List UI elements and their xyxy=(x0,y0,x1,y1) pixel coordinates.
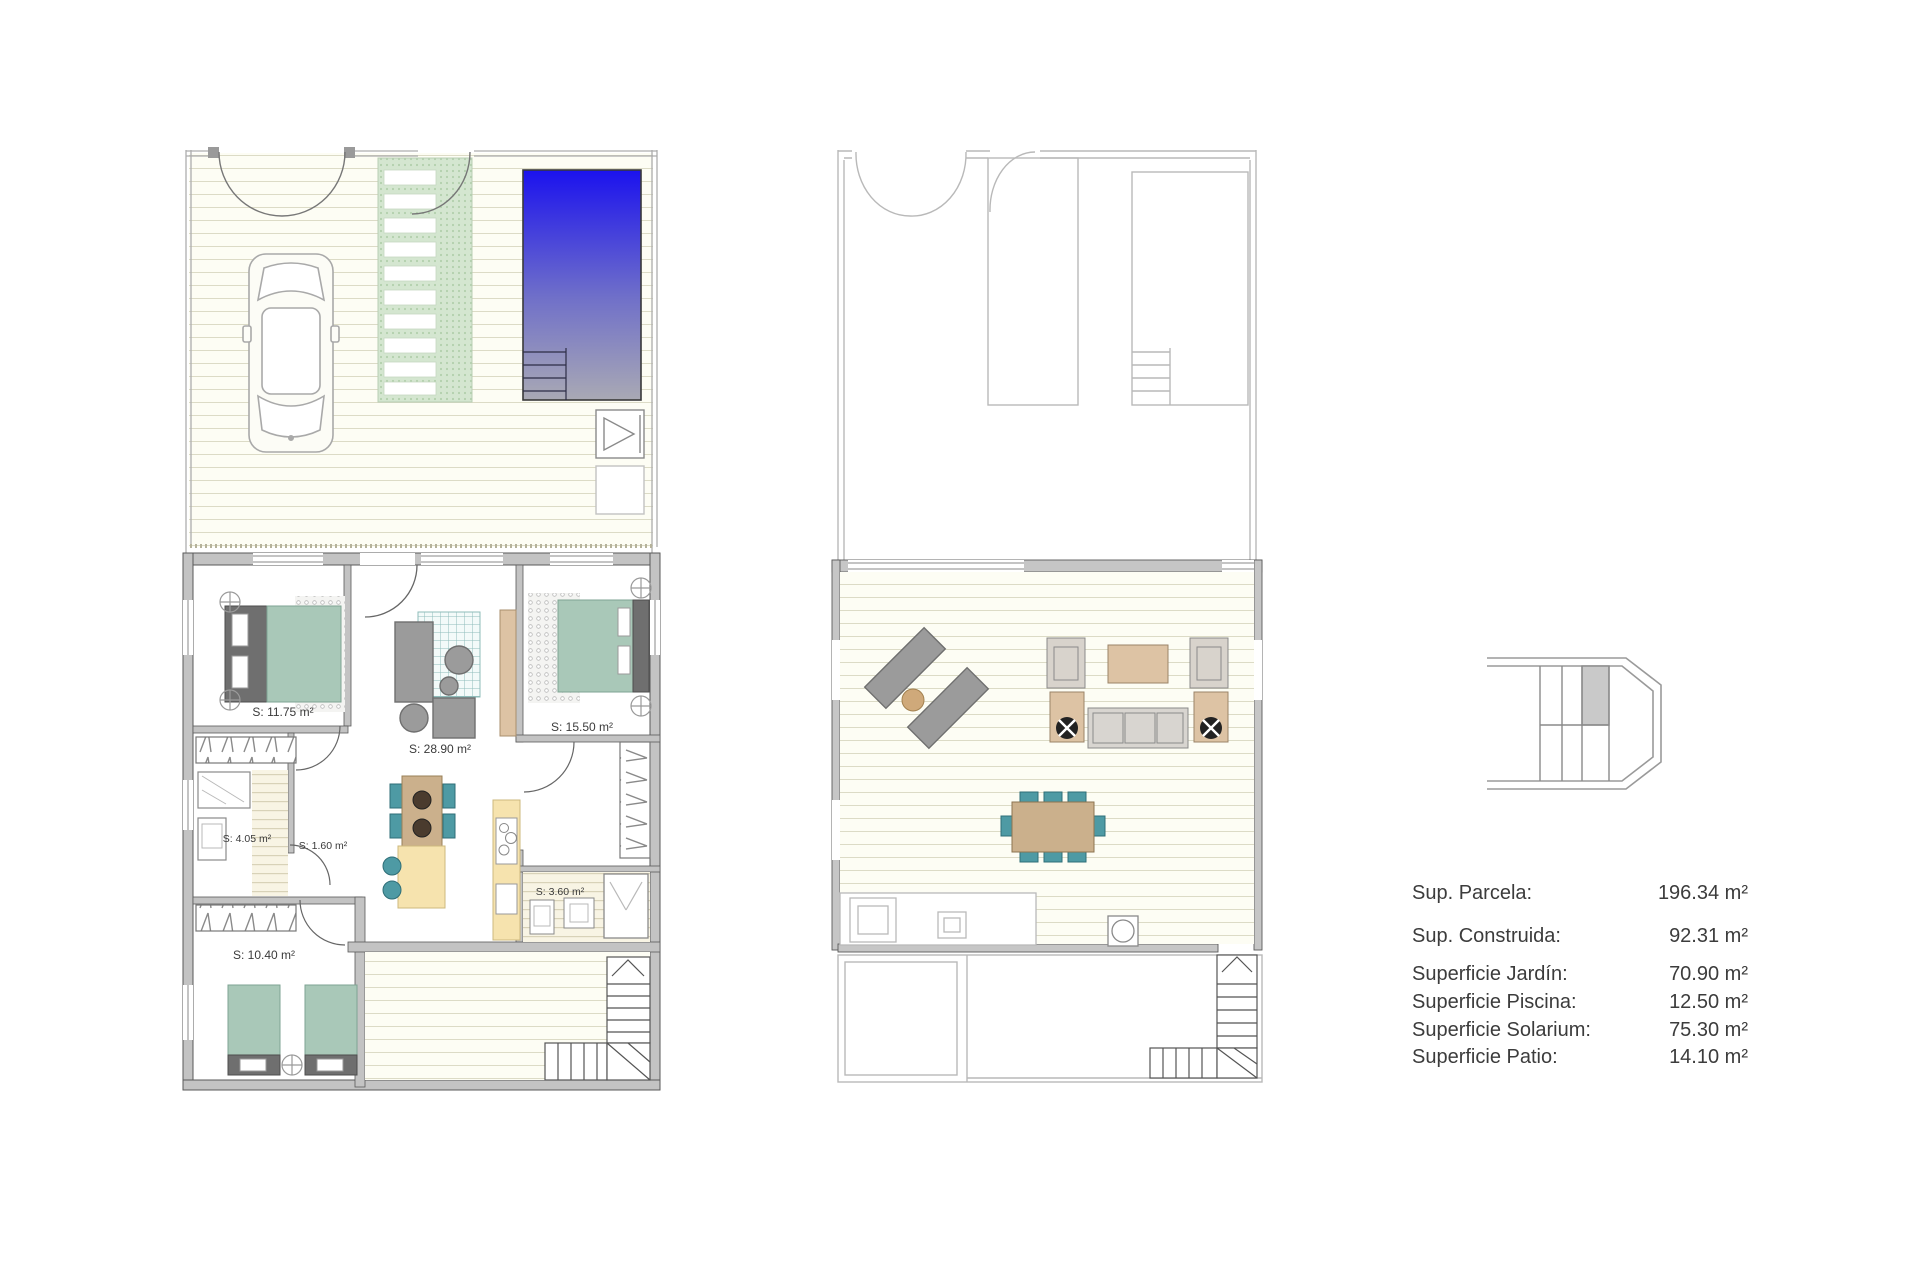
coffee-table xyxy=(1108,645,1168,683)
outdoor-dining-set xyxy=(1001,792,1105,862)
room-label: S: 4.05 m² xyxy=(223,833,272,845)
summary-row: Superficie Solarium: 75.30 m² xyxy=(1412,1019,1748,1042)
room-label: S: 15.50 m² xyxy=(551,720,613,734)
summary-value: 92.31 m² xyxy=(1669,925,1748,948)
bedroom-1: S: 11.75 m² xyxy=(220,592,345,719)
summer-kitchen-counter xyxy=(840,893,1036,945)
ground-floor-plan: S: 11.75 m² S: 4.05 m² S: 1.60 m² S: 28.… xyxy=(183,147,660,1090)
washbasin xyxy=(564,898,594,928)
summary-label: Superficie Jardín: xyxy=(1412,963,1568,986)
summary-row: Sup. Construida: 92.31 m² xyxy=(1412,925,1748,948)
living-kitchen: S: 28.90 m² xyxy=(383,610,520,940)
room-label: S: 3.60 m² xyxy=(536,886,585,898)
room-label: S: 1.60 m² xyxy=(299,840,348,852)
outdoor-sofa xyxy=(1088,708,1188,748)
pool-outline-steps xyxy=(1132,348,1170,405)
kitchen-island xyxy=(383,846,445,908)
room-label: S: 11.75 m² xyxy=(252,705,313,719)
summary-label: Superficie Solarium: xyxy=(1412,1019,1591,1042)
highlighted-unit xyxy=(1582,666,1609,725)
floor-plan-sheet: S: 11.75 m² S: 4.05 m² S: 1.60 m² S: 28.… xyxy=(0,0,1920,1280)
summary-value: 70.90 m² xyxy=(1669,963,1748,986)
summary-row: Superficie Jardín: 70.90 m² xyxy=(1412,963,1748,986)
side-table xyxy=(902,689,924,711)
lower-floor-outline-top xyxy=(838,150,1256,560)
summary-row: Sup. Parcela: 196.34 m² xyxy=(1412,882,1748,905)
summary-row: Superficie Patio: 14.10 m² xyxy=(1412,1046,1748,1069)
bedroom-3: S: 10.40 m² xyxy=(228,948,357,1075)
summary-value: 75.30 m² xyxy=(1669,1019,1748,1042)
ceiling-light-icon xyxy=(282,1055,302,1075)
stepping-stone-path xyxy=(378,152,472,402)
swimming-pool xyxy=(523,170,641,400)
bedroom-2: S: 15.50 m² xyxy=(528,578,651,734)
solarium-deck xyxy=(840,572,1254,944)
kitchen-counter xyxy=(493,800,520,940)
shower xyxy=(604,874,648,938)
staircase xyxy=(1150,955,1257,1078)
sideboard xyxy=(500,610,516,736)
location-key xyxy=(1487,658,1661,789)
parking-car xyxy=(243,254,339,452)
dining-set xyxy=(390,776,455,846)
double-bed xyxy=(558,600,649,692)
summary-label: Sup. Construida: xyxy=(1412,925,1561,948)
solarium-floor-plan xyxy=(832,150,1262,1082)
summary-value: 12.50 m² xyxy=(1669,991,1748,1014)
double-bed xyxy=(225,606,341,702)
summary-row: Superficie Piscina: 12.50 m² xyxy=(1412,991,1748,1014)
bathroom-1: S: 4.05 m² xyxy=(198,770,288,896)
patio-deck xyxy=(365,952,650,1080)
sink xyxy=(496,884,517,914)
summary-value: 196.34 m² xyxy=(1658,882,1748,905)
entry-door-arc xyxy=(365,565,417,617)
room-label: S: 28.90 m² xyxy=(409,742,471,756)
summary-value: 14.10 m² xyxy=(1669,1046,1748,1069)
summary-label: Sup. Parcela: xyxy=(1412,882,1532,905)
bathroom-2: S: 3.60 m² xyxy=(523,872,650,942)
floor-plan-canvas: S: 11.75 m² S: 4.05 m² S: 1.60 m² S: 28.… xyxy=(0,0,1920,1280)
summary-label: Superficie Piscina: xyxy=(1412,991,1577,1014)
room-label: S: 10.40 m² xyxy=(233,948,295,962)
summary-label: Superficie Patio: xyxy=(1412,1046,1558,1069)
barbecue xyxy=(1108,916,1138,946)
